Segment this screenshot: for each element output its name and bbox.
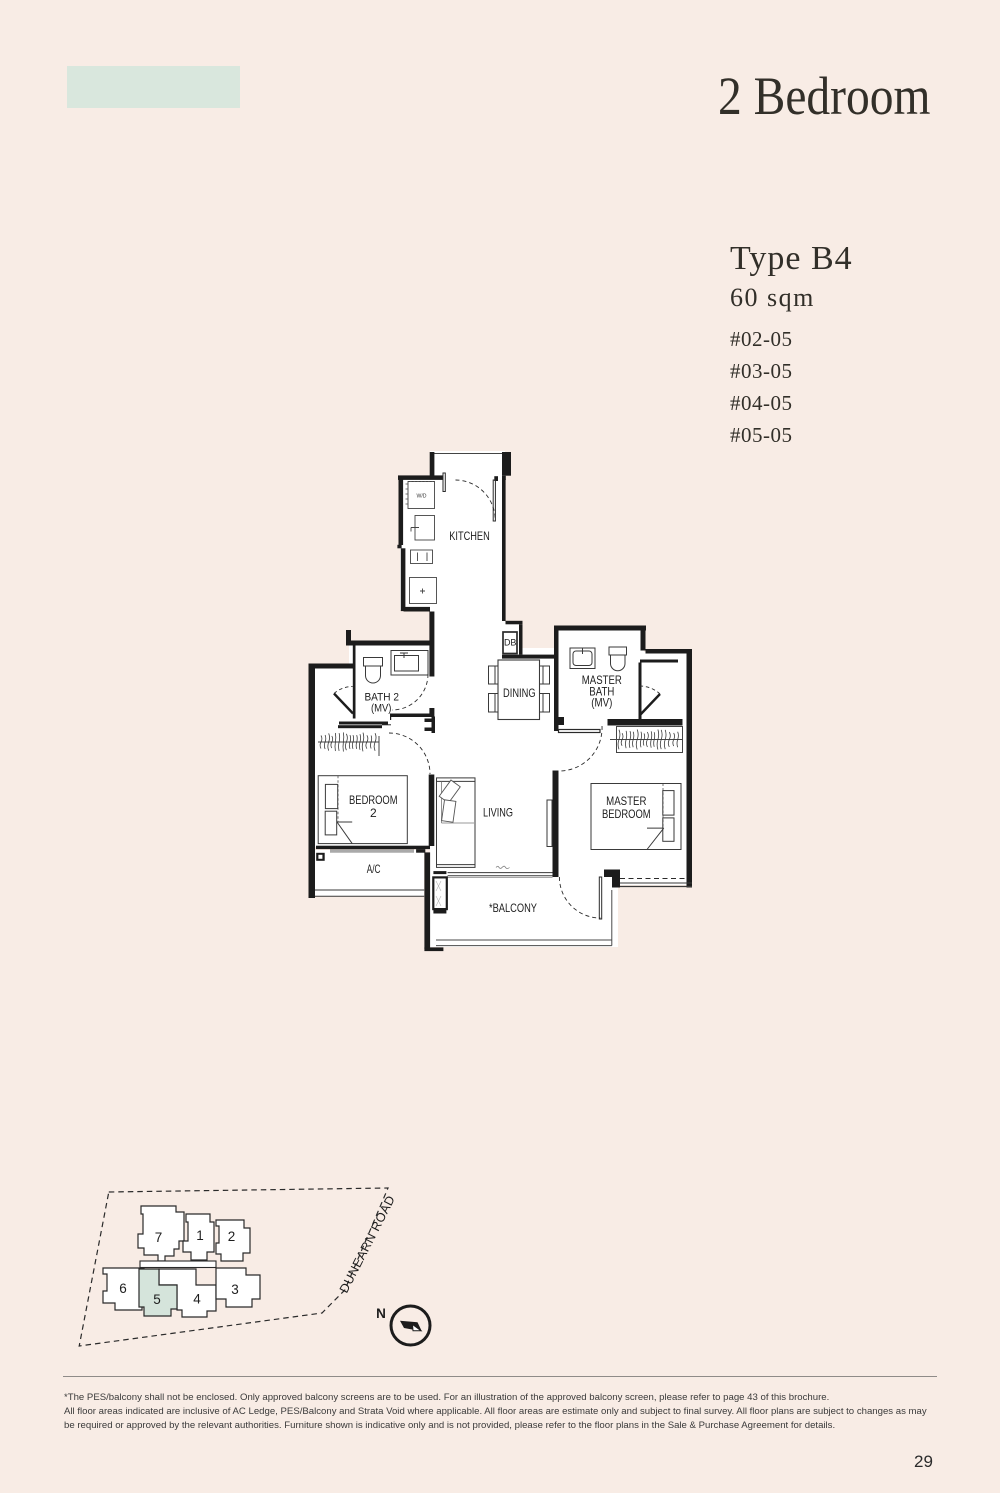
svg-text:*BALCONY: *BALCONY [489, 901, 537, 915]
svg-text:BEDROOM: BEDROOM [349, 793, 398, 807]
svg-text:KITCHEN: KITCHEN [449, 529, 490, 543]
svg-text:W/D: W/D [417, 494, 427, 500]
svg-text:LIVING: LIVING [483, 806, 513, 820]
svg-text:4: 4 [193, 1292, 201, 1307]
svg-text:DINING: DINING [503, 686, 536, 700]
svg-text:1: 1 [196, 1228, 204, 1243]
svg-text:5: 5 [153, 1292, 161, 1307]
svg-text:2: 2 [370, 806, 377, 820]
svg-text:7: 7 [155, 1230, 163, 1245]
svg-text:DUNEARN ROAD: DUNEARN ROAD [337, 1193, 398, 1295]
svg-text:2: 2 [228, 1229, 236, 1244]
svg-text:(MV): (MV) [371, 703, 392, 715]
svg-text:BEDROOM: BEDROOM [602, 807, 651, 821]
svg-text:A/C: A/C [367, 862, 381, 876]
svg-text:(MV): (MV) [591, 696, 612, 710]
svg-text:3: 3 [231, 1282, 239, 1297]
svg-text:MASTER: MASTER [606, 794, 647, 808]
svg-text:6: 6 [119, 1281, 127, 1296]
svg-text:N: N [376, 1306, 386, 1321]
svg-text:DB: DB [504, 638, 517, 649]
